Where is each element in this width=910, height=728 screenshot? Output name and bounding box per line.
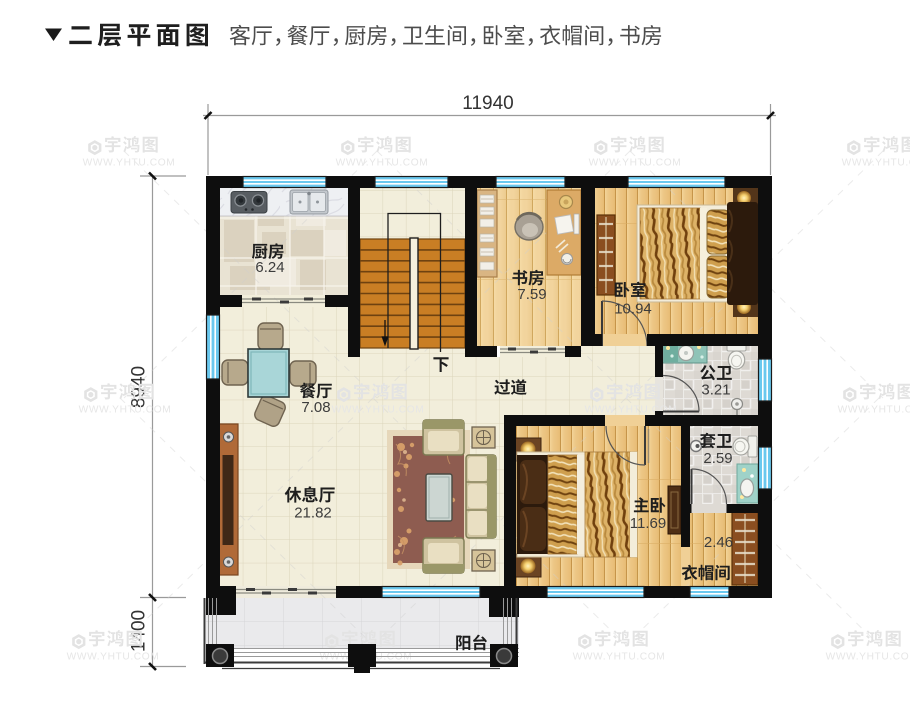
svg-text:11940: 11940 xyxy=(462,93,513,114)
svg-text:2.59: 2.59 xyxy=(703,450,732,467)
svg-text:2.46: 2.46 xyxy=(704,534,733,551)
svg-text:6.24: 6.24 xyxy=(255,259,284,276)
svg-text:11.69: 11.69 xyxy=(630,515,666,532)
svg-text:3.21: 3.21 xyxy=(701,381,730,398)
svg-text:7.59: 7.59 xyxy=(517,286,546,303)
svg-text:21.82: 21.82 xyxy=(294,504,332,521)
svg-text:10.94: 10.94 xyxy=(614,300,652,317)
svg-text:7.08: 7.08 xyxy=(301,399,330,416)
